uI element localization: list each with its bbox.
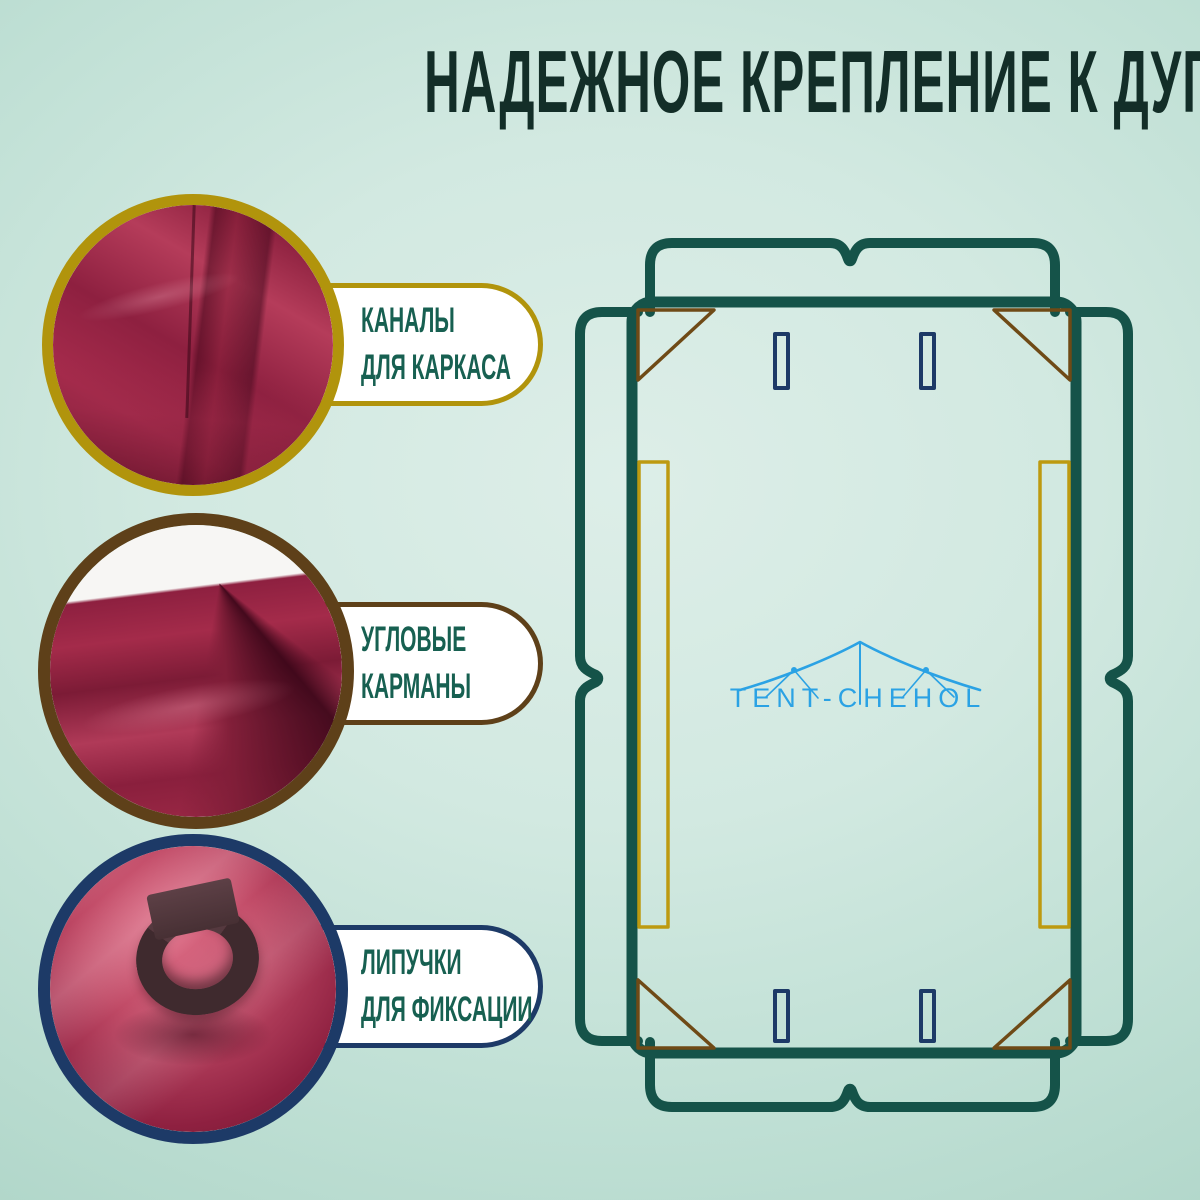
feature-photo-frame-channels <box>42 194 344 496</box>
velcro-strap-photo <box>50 846 336 1132</box>
burgundy-fabric-channel-photo <box>53 205 333 485</box>
strap-slot-top-left <box>775 334 788 388</box>
feature-photo-corner-pockets <box>38 513 354 829</box>
corner-pocket-top-right <box>994 310 1070 380</box>
page-title: НАДЕЖНОЕ КРЕПЛЕНИЕ К ДУГАМ КРЫШИ <box>0 38 1200 126</box>
feature-label-line: КАНАЛЫ <box>361 298 467 345</box>
corner-pocket-photo <box>50 525 342 817</box>
main-panel <box>632 302 1076 1053</box>
feature-photo-velcro-straps <box>38 834 348 1144</box>
strap-slot-top-right <box>921 334 934 388</box>
feature-label-line: УГЛОВЫЕ <box>361 617 467 664</box>
strap-slot-bottom-left <box>775 991 788 1041</box>
frame-channel-left <box>639 462 668 927</box>
feature-label-line: КАРМАНЫ <box>361 664 467 711</box>
logo-text: TENT-CHEHOL <box>730 683 987 713</box>
feature-label-line: ДЛЯ КАРКАСА <box>361 345 467 392</box>
tent-cover-schematic: TENT-CHEHOL <box>550 180 1160 1145</box>
infographic-canvas: НАДЕЖНОЕ КРЕПЛЕНИЕ К ДУГАМ КРЫШИ КАНАЛЫ … <box>0 0 1200 1200</box>
feature-label-line: ДЛЯ ФИКСАЦИИ <box>361 987 467 1034</box>
tent-chehol-logo: TENT-CHEHOL <box>730 642 987 713</box>
feature-label-line: ЛИПУЧКИ <box>361 940 467 987</box>
frame-channel-right <box>1040 462 1069 927</box>
page-title-text: НАДЕЖНОЕ КРЕПЛЕНИЕ К ДУГАМ КРЫШИ <box>424 38 1200 126</box>
strap-slot-bottom-right <box>921 991 934 1041</box>
tent-knot-right <box>923 667 929 673</box>
corner-pocket-top-left <box>638 310 714 380</box>
tent-knot-left <box>791 667 797 673</box>
corner-pocket-bottom-right <box>994 980 1070 1048</box>
